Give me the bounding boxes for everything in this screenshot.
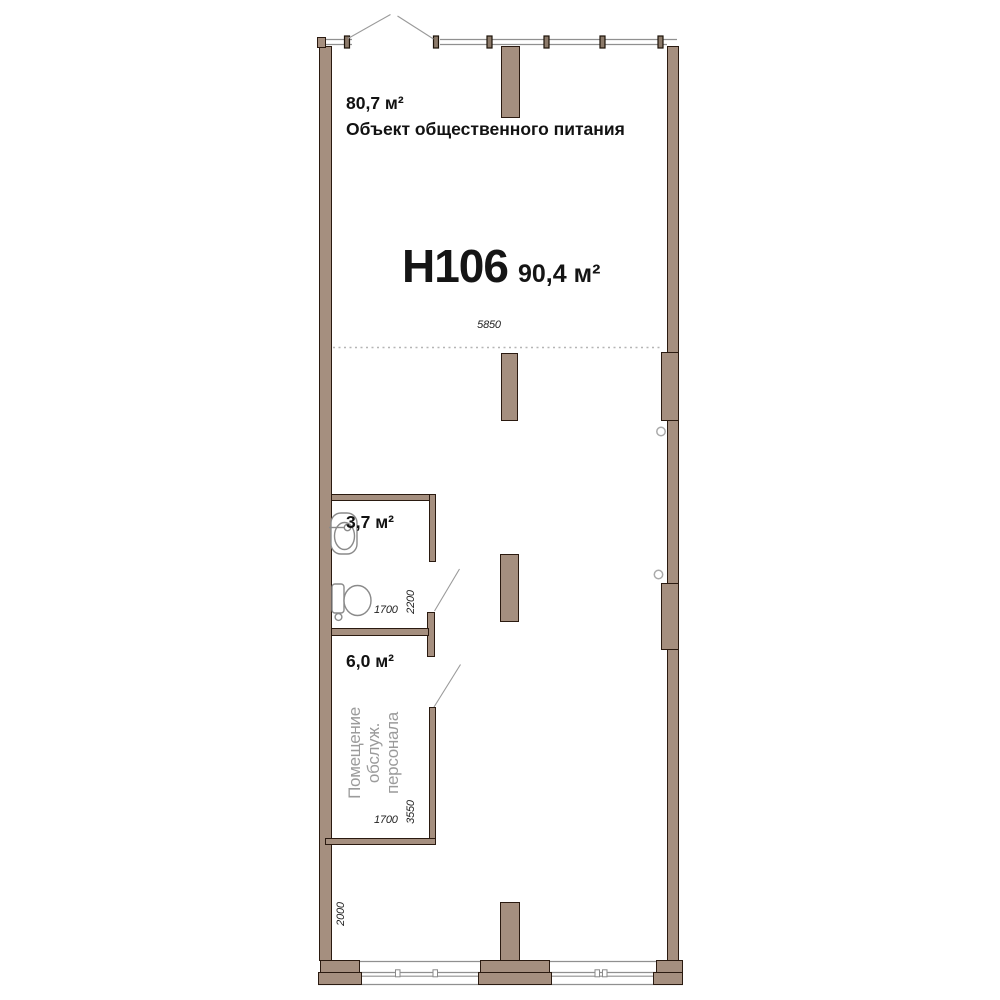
pilaster-right-lower bbox=[661, 583, 679, 650]
staff-room-name-line: персонала bbox=[383, 688, 402, 818]
bathroom-wall-right bbox=[429, 494, 436, 562]
dimension-left-offset: 2000 bbox=[335, 884, 349, 944]
wall-right bbox=[667, 46, 679, 961]
pillar-bottom-center bbox=[500, 902, 520, 962]
pier-left-lower bbox=[318, 972, 362, 985]
door-swing-icon bbox=[348, 15, 434, 40]
pillar-top-center bbox=[501, 46, 520, 118]
door-swing-icon bbox=[435, 569, 460, 611]
staff-room-name-line: обслуж. bbox=[364, 688, 383, 818]
door-swing-icon bbox=[434, 665, 461, 708]
dimension-bathroom-depth: 2200 bbox=[405, 572, 419, 632]
pilaster-right-upper bbox=[661, 352, 679, 421]
staff-area-label: 6,0 м² bbox=[346, 651, 394, 672]
dimension-staff-depth: 3550 bbox=[405, 782, 419, 842]
plan-linework bbox=[0, 0, 1000, 1000]
staff-wall-right bbox=[429, 707, 436, 839]
bathroom-wall-top bbox=[331, 494, 436, 501]
door-axis-marker bbox=[654, 427, 665, 578]
wall-left bbox=[319, 46, 332, 961]
bathroom-area-label: 3,7 м² bbox=[346, 512, 394, 533]
pillar-mid-lower bbox=[500, 554, 519, 622]
wall-left-top-cap bbox=[317, 37, 326, 48]
dimension-hall-width: 5850 bbox=[459, 319, 519, 331]
floor-plan: 80,7 м² Объект общественного питания Н10… bbox=[0, 0, 1000, 1000]
toilet-icon bbox=[330, 581, 376, 623]
dimension-staff-width: 1700 bbox=[374, 814, 398, 826]
unit-id: Н106 bbox=[402, 239, 508, 293]
unit-area: 90,4 м² bbox=[518, 260, 600, 289]
staff-room-name-line: Помещение bbox=[345, 688, 364, 818]
staff-wall-bottom bbox=[325, 838, 436, 845]
pier-center-lower bbox=[478, 972, 552, 985]
catering-area-label: 80,7 м² bbox=[346, 93, 404, 114]
pier-right-lower bbox=[653, 972, 683, 985]
pillar-mid-upper bbox=[501, 353, 518, 421]
catering-zone-name: Объект общественного питания bbox=[346, 119, 625, 140]
dimension-bathroom-width: 1700 bbox=[374, 604, 398, 616]
staff-room-name: Помещение обслуж. персонала bbox=[345, 688, 403, 818]
storefront-glazing bbox=[326, 40, 677, 45]
unit-title: Н106 90,4 м² bbox=[402, 239, 600, 293]
